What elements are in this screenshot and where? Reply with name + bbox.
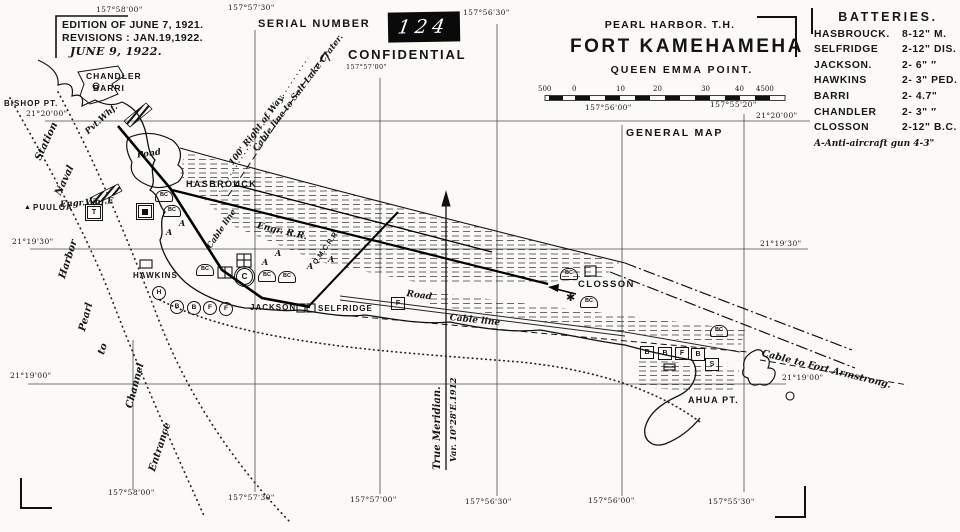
label-battery-jackson: JACKSON [250, 304, 296, 312]
longitude-label: 157°55'20" [710, 101, 757, 109]
batteries-legend: BATTERIES. HASBROUCK. 8-12" M. SELFRIDGE… [814, 10, 960, 149]
battery-name: JACKSON. [814, 60, 902, 71]
battery-name: CHANDLER [814, 107, 902, 118]
map-symbol-box-filled [138, 205, 152, 218]
longitude-label: 157°58'00" [96, 6, 143, 14]
longitude-label: 157°57'00" [346, 64, 387, 71]
latitude-label: 21°19'00" [10, 372, 52, 380]
scale-tick: 0 [572, 86, 576, 93]
confidential-stamp: CONFIDENTIAL [348, 48, 466, 61]
anti-aircraft-mark: A [262, 257, 268, 267]
map-symbol-bc-station: BC [196, 264, 214, 276]
map-type-label: GENERAL MAP [626, 128, 723, 139]
latitude-label: 21°19'00" [782, 374, 824, 382]
label-battery-closson: CLOSSON [578, 280, 635, 290]
anti-aircraft-mark: A [275, 248, 281, 258]
map-symbol-bc-station: BC [710, 325, 728, 337]
latitude-label: 21°19'30" [760, 240, 802, 248]
longitude-label: 157°57'00" [350, 496, 397, 504]
battery-row: SELFRIDGE 2-12" DIS. [814, 44, 960, 55]
serial-number-value: 124 [397, 16, 452, 39]
map-symbol-box-f: F [675, 347, 689, 360]
map-symbol-box-t: T [87, 206, 101, 219]
battery-name: BARRI [814, 91, 902, 102]
map-subtitle: QUEEN EMMA POINT. [597, 65, 767, 76]
map-symbol-bc-station: BC [163, 205, 181, 217]
latitude-label: 21°20'00" [756, 112, 798, 120]
battery-name: HAWKINS [814, 75, 902, 86]
map-symbol-bc-station: BC [155, 190, 173, 202]
label-true-meridian: True Meridian. [433, 386, 443, 470]
battery-row: HAWKINS 2- 3" PED. [814, 75, 960, 86]
battery-row: CLOSSON 2-12" B.C. [814, 122, 960, 133]
longitude-label: 157°56'00" [588, 497, 635, 505]
longitude-label: 157°56'30" [465, 498, 512, 506]
map-symbol-circle-b: B [170, 300, 184, 314]
battery-armament: 2- 3" ″ [902, 107, 937, 118]
longitude-label: 157°58'00" [108, 489, 155, 497]
filled-square [142, 209, 148, 215]
map-symbol-circle-f: F [203, 301, 217, 315]
latitude-label: 21°20'00" [26, 110, 68, 118]
label-battery-hasbrouck: HASBROUCK [186, 180, 257, 189]
map-symbol-circle-h: H [152, 286, 166, 300]
edition-line1: EDITION OF JUNE 7, 1921. [62, 19, 203, 32]
longitude-label: 157°57'30" [228, 494, 275, 502]
battery-armament: 2- 3" PED. [902, 75, 958, 86]
batteries-title: BATTERIES. [814, 10, 960, 24]
map-symbol-bc-station: BC [278, 271, 296, 283]
anti-aircraft-mark: A [328, 254, 334, 264]
label-ahua-point: AHUA PT. [688, 396, 739, 405]
map-symbol-box-b: B [658, 347, 672, 360]
anti-aircraft-mark: A [307, 261, 313, 271]
map-symbol-bc-station: BC [580, 296, 598, 308]
label-battery-barri: BARRI [93, 84, 125, 93]
battery-armament: 2- 4.7" [902, 91, 937, 102]
edition-block: EDITION OF JUNE 7, 1921. REVISIONS : JAN… [62, 19, 203, 59]
longitude-label: 157°56'30" [463, 9, 510, 17]
battery-row: BARRI 2- 4.7" [814, 91, 960, 102]
map-symbol-star: ✱ [566, 293, 575, 304]
map-symbol-bc-station: BC [560, 268, 578, 280]
map-symbol-bc-station: BC [258, 270, 276, 282]
map-title: FORT KAMEHAMEHA [570, 37, 795, 56]
battery-armament: 8-12" M. [902, 29, 947, 40]
battery-armament: 2- 6" ″ [902, 60, 937, 71]
battery-name: CLOSSON [814, 122, 902, 133]
map-symbol-circle-b: B [187, 301, 201, 315]
latitude-label: 21°19'30" [12, 238, 54, 246]
map-symbol-circle-c: C [236, 268, 253, 285]
map-symbol-box-f: F [391, 297, 405, 310]
label-meridian-variation: Var. 10°28'E.1912 [450, 377, 459, 462]
scale-tick: 40 [735, 86, 744, 93]
scanned-map-page: EDITION OF JUNE 7, 1921. REVISIONS : JAN… [0, 0, 960, 532]
serial-number-label: SERIAL NUMBER [258, 19, 370, 30]
map-symbol-circle-f: F [219, 302, 233, 316]
scale-tick: 30 [701, 86, 710, 93]
longitude-label: 157°55'30" [708, 498, 755, 506]
anti-aircraft-mark: A [179, 218, 185, 228]
label-battery-hawkins: HAWKINS [133, 272, 178, 280]
edition-line3: JUNE 9, 1922. [70, 45, 203, 59]
label-battery-selfridge: SELFRIDGE [318, 305, 373, 313]
anti-aircraft-mark: A [166, 227, 172, 237]
battery-row: CHANDLER 2- 3" ″ [814, 107, 960, 118]
map-symbol-box-b: B [691, 348, 705, 361]
battery-name: SELFRIDGE [814, 44, 902, 55]
scale-tick: 10 [616, 86, 625, 93]
longitude-label: 157°57'30" [228, 4, 275, 12]
serial-number-stamp: 124 [388, 11, 461, 42]
battery-armament: 2-12" B.C. [902, 122, 957, 133]
map-symbol-box-s: S [705, 358, 719, 371]
longitude-label: 157°56'00" [585, 104, 632, 112]
battery-armament: 2-12" DIS. [902, 44, 956, 55]
label-bishop-point: BISHOP PT. [4, 100, 58, 108]
battery-row: HASBROUCK. 8-12" M. [814, 29, 960, 40]
scale-tick: 4500 [756, 86, 774, 93]
label-battery-chandler: CHANDLER [86, 72, 142, 81]
battery-name: HASBROUCK. [814, 29, 902, 40]
anti-aircraft-note: A-Anti-aircraft gun 4-3" [814, 139, 960, 149]
map-region-title: PEARL HARBOR. T.H. [600, 20, 740, 31]
edition-line2: REVISIONS : JAN.19,1922. [62, 32, 203, 45]
battery-row: JACKSON. 2- 6" ″ [814, 60, 960, 71]
scale-tick: 500 [538, 86, 551, 93]
triangulation-triangle-icon: ▲ [24, 204, 31, 211]
scale-tick: 20 [653, 86, 662, 93]
map-symbol-box-b: B [640, 346, 654, 359]
